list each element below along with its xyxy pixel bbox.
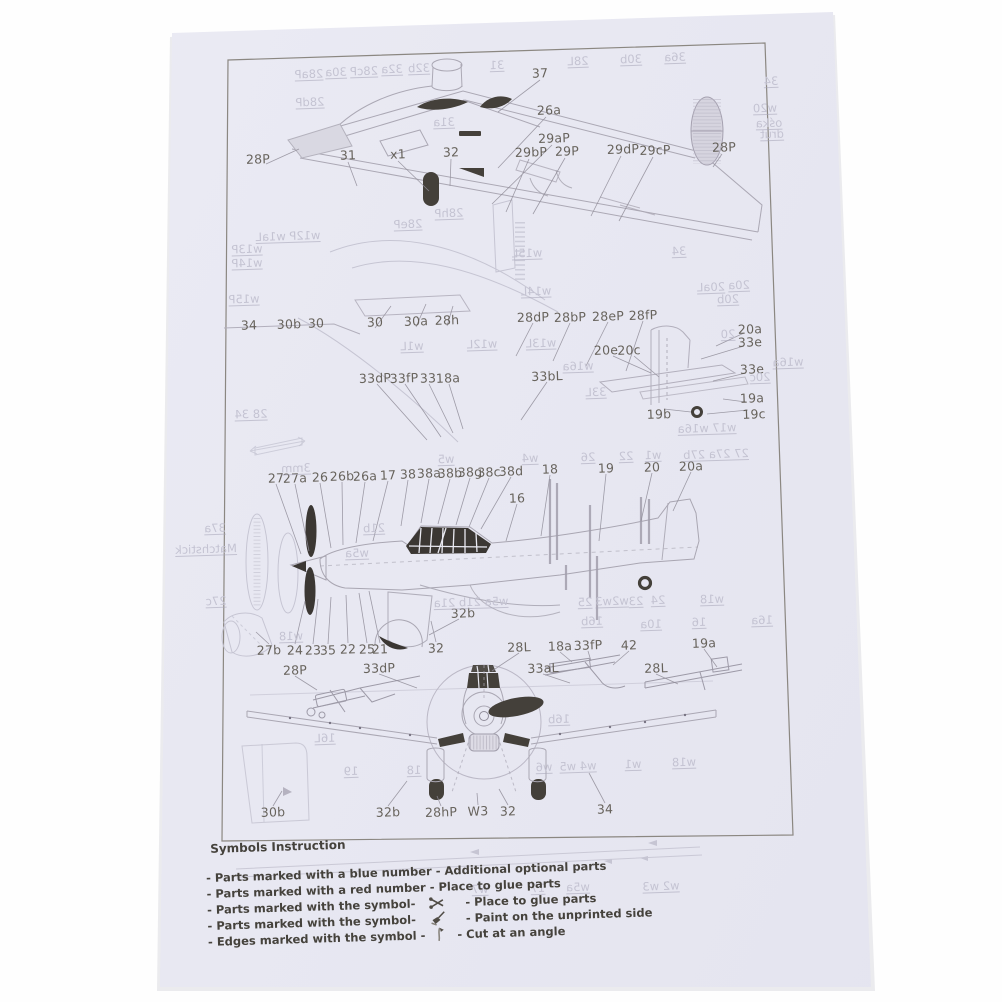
leader-lines [256, 80, 748, 806]
mid-detail-drawing [224, 295, 748, 417]
front-view-drawing [247, 655, 742, 800]
legend-text: - Cut at an angle [457, 924, 565, 941]
instruction-sheet-photo: 3726a29aP29bP29P29dP29cP28P28P31x1323430… [0, 0, 1002, 1002]
cut-symbol-icon [430, 926, 450, 943]
symbols-instruction: Symbols Instruction - Parts marked with … [205, 825, 768, 950]
glue-symbol-icon [427, 894, 447, 911]
top-view-drawing [288, 59, 762, 240]
paint-symbol-icon [428, 910, 448, 927]
